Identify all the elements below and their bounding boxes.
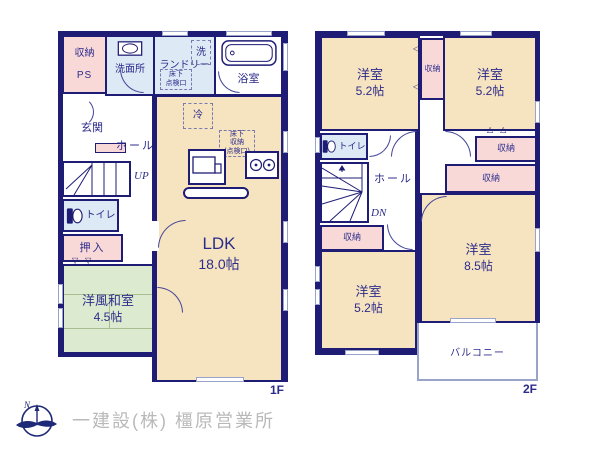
tatami-line xyxy=(64,328,152,329)
fridge-space: 冷 xyxy=(183,103,213,129)
window xyxy=(162,31,188,36)
dn-label: DN xyxy=(371,207,386,219)
toilet-icon xyxy=(66,205,83,227)
closet-label: 収納 xyxy=(482,173,500,185)
window xyxy=(535,101,540,123)
closet-label: 収納 xyxy=(497,143,515,155)
hall-label: ホール xyxy=(116,137,155,153)
room-2f-bedroom-tl: 洋室 5.2帖 xyxy=(320,36,420,131)
room-2f-bedroom-tr: 洋室 5.2帖 xyxy=(443,36,537,131)
window xyxy=(347,31,385,36)
window xyxy=(283,289,288,311)
stair-treads xyxy=(64,163,129,195)
window xyxy=(315,266,320,282)
window xyxy=(460,31,492,36)
window xyxy=(196,377,244,382)
balcony-label: バルコニー xyxy=(450,344,505,359)
kitchen-counter xyxy=(183,187,249,199)
window xyxy=(283,221,288,243)
window xyxy=(226,31,272,36)
closet-2f-vertical: 収納 xyxy=(420,38,445,100)
window xyxy=(283,43,288,71)
staircase-1f xyxy=(62,161,131,197)
staircase-2f xyxy=(320,162,369,223)
closet-2f-bottomleft: 収納 xyxy=(320,225,384,251)
compass-n-label: N xyxy=(23,400,31,410)
room-toilet-1f: トイレ xyxy=(62,199,119,232)
entrance-door-arc xyxy=(64,97,94,127)
bedroom-br-name: 洋室 xyxy=(465,242,491,259)
bedroom-tr-name: 洋室 xyxy=(477,67,503,84)
room-laundry: ランドリー 洗 床下 点検口 xyxy=(153,35,216,96)
bedroom-br-size: 8.5帖 xyxy=(464,259,493,275)
bedroom-bl-name: 洋室 xyxy=(355,284,381,301)
folding-door-mark: ◁ xyxy=(413,45,419,53)
wafu-name: 洋風和室 xyxy=(82,293,134,310)
stair-treads xyxy=(322,164,367,221)
window xyxy=(535,228,540,252)
floorplan-canvas: 収納 PS 洗面所 ランドリー 洗 床下 点検口 xyxy=(0,0,600,450)
wafu-size: 4.5帖 xyxy=(94,310,123,326)
bedroom-bl-size: 5.2帖 xyxy=(354,301,383,317)
bathroom-label: 浴室 xyxy=(238,72,260,86)
sink-icon xyxy=(117,41,143,56)
washer-label: 洗 xyxy=(196,47,206,59)
floor-label-2f: 2F xyxy=(507,382,537,396)
hall-2f-label: ホール xyxy=(374,170,413,186)
floor-plan-2f: 洋室 5.2帖 収納 ◁ ◁ 洋室 5.2帖 トイレ xyxy=(315,31,543,391)
folding-door-marks: △△ xyxy=(487,126,513,134)
washer-space: 洗 xyxy=(191,40,211,65)
folding-door-mark: ◁ xyxy=(413,83,419,91)
window xyxy=(283,131,288,153)
closet-label: 収納 xyxy=(425,64,441,74)
floor-label-1f: 1F xyxy=(258,383,284,397)
window xyxy=(315,137,320,153)
storage-label: 収納 xyxy=(75,47,95,60)
room-2f-bedroom-bl: 洋室 5.2帖 xyxy=(320,250,417,350)
stove-unit xyxy=(245,151,279,179)
toilet-label-2f: トイレ xyxy=(338,141,365,153)
bedroom-tr-size: 5.2帖 xyxy=(476,84,505,100)
floor-plan-1f: 収納 PS 洗面所 ランドリー 洗 床下 点検口 xyxy=(58,31,288,399)
closet-2f-topright: 収納 xyxy=(475,136,537,162)
ufs-line2: 収納 xyxy=(230,139,244,147)
window xyxy=(58,308,63,328)
toilet-label-1f: トイレ xyxy=(86,209,116,222)
ps-label: PS xyxy=(77,69,92,82)
window xyxy=(315,289,320,305)
toilet-icon xyxy=(322,137,336,156)
fridge-label: 冷 xyxy=(193,110,203,122)
company-name: 一建設(株) 橿原営業所 xyxy=(72,407,275,433)
closet-2f-middle: 収納 xyxy=(445,164,537,193)
window xyxy=(345,350,379,355)
kitchen-sink-unit xyxy=(188,149,226,185)
balcony-door-opening xyxy=(450,318,496,323)
underfloor-hatch: 床下 点検口 xyxy=(160,69,192,90)
up-label: UP xyxy=(134,170,149,182)
room-wafu: 洋風和室 4.5帖 xyxy=(62,264,154,354)
compass-logo: N xyxy=(12,396,60,444)
bedroom-tl-size: 5.2帖 xyxy=(356,84,385,100)
balcony: バルコニー xyxy=(417,323,538,381)
room-toilet-2f: トイレ xyxy=(320,133,368,160)
room-storage-ps: 収納 PS xyxy=(62,35,107,94)
oshiire-label: 押入 xyxy=(80,241,106,255)
hatch-line2: 点検口 xyxy=(166,80,187,88)
closet-label: 収納 xyxy=(343,232,361,244)
ldk-size: 18.0帖 xyxy=(157,255,281,273)
window xyxy=(58,284,63,304)
bathtub-icon xyxy=(221,40,277,66)
hatch-line1: 床下 xyxy=(169,71,183,79)
bedroom-tl-name: 洋室 xyxy=(357,67,383,84)
